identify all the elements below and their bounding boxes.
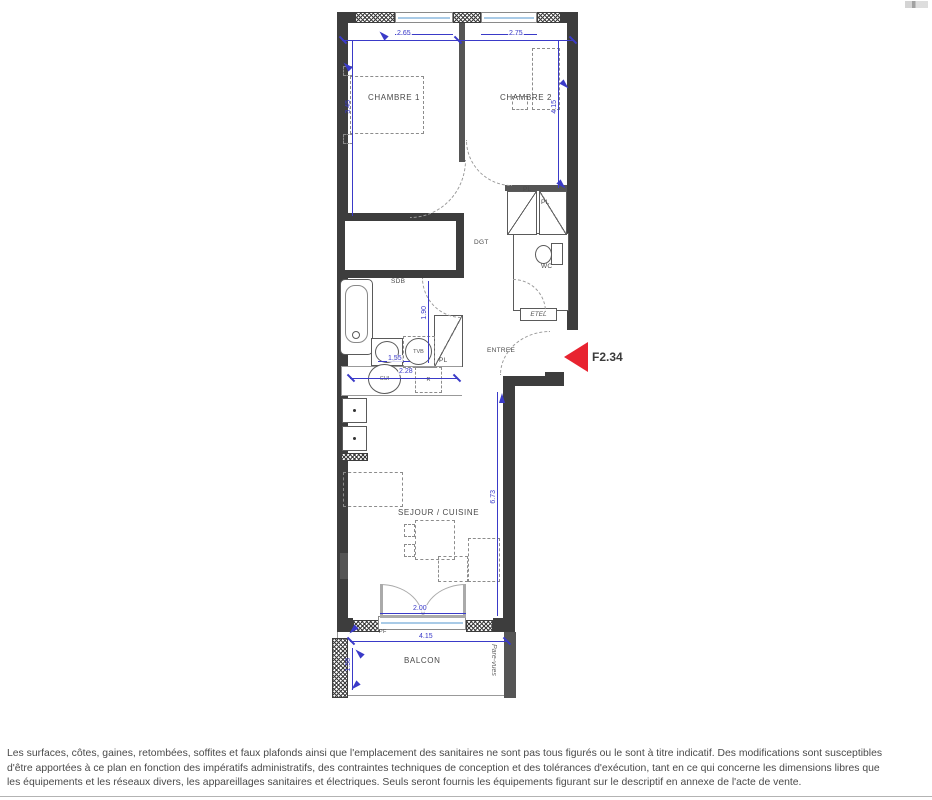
bottom-rule (0, 796, 932, 797)
window (481, 12, 537, 23)
chair (404, 524, 415, 537)
disclaimer-line: d'être apportées à ce plan en fonction d… (7, 762, 929, 777)
dim-pf-width: 2.00 (412, 605, 428, 612)
pare-vues-label: Pare-vues (490, 644, 497, 676)
wc-bowl (535, 245, 552, 264)
dim-sejour-depth: 6.73 (489, 490, 498, 504)
door-arc (410, 160, 466, 218)
closet-label-pl: PL (541, 199, 550, 206)
bathtub-drain (352, 331, 360, 339)
closet-pl-1 (507, 191, 537, 235)
entrance-arrow-icon (564, 342, 588, 372)
closet-pl-2 (539, 191, 567, 235)
porte-fenetre-frame (378, 616, 466, 630)
floor-plan-page: Pare-vues ETEL TVB CUI R (0, 0, 932, 800)
unit-reference: F2.34 (592, 350, 623, 364)
room-label-entree: ENTREE (487, 347, 515, 354)
dimension-line (350, 378, 458, 379)
dim-lavabo: 1.55 (387, 355, 403, 362)
wc-cistern (551, 243, 563, 265)
window (395, 12, 453, 23)
room-label-chambre2: CHAMBRE 2 (500, 93, 552, 102)
room-label-balcon: BALCON (404, 656, 441, 665)
dim-chambre2-depth: 4.15 (550, 100, 559, 114)
dim-balcon-width: 4.15 (418, 633, 434, 640)
room-label-chambre1: CHAMBRE 1 (368, 93, 420, 102)
hatched-wall (341, 453, 368, 461)
chair (404, 544, 415, 557)
oven-unit (342, 426, 367, 451)
wall-segment (493, 618, 515, 632)
oven-unit (342, 398, 367, 423)
hatched-wall (453, 12, 481, 23)
door-arc (466, 140, 512, 186)
dimension-line (428, 281, 429, 363)
dim-kitchen: 2.28 (398, 368, 414, 375)
knob-dot (353, 409, 356, 412)
sofa-return (438, 556, 468, 582)
dimension-line (558, 40, 559, 188)
room-label-sdb: SDB (391, 278, 405, 285)
window-sill (381, 622, 463, 624)
window-sill (398, 17, 450, 19)
dim-sdb-depth: 1.90 (420, 306, 429, 320)
label-pf: PF (379, 629, 387, 635)
knob-dot (353, 437, 356, 440)
disclaimer-line: Les surfaces, côtes, gaines, retombées, … (7, 747, 929, 762)
dim-window2: 2.75 (508, 30, 524, 37)
radiator (340, 553, 348, 579)
kitchen-sink: CUI (368, 364, 401, 394)
hatched-wall (466, 620, 493, 632)
window-sill (484, 17, 534, 19)
kitchen-island (343, 472, 403, 507)
closet-label-pl: PL (523, 186, 532, 193)
dim-balcon-depth: 1.58 (344, 658, 353, 672)
hatched-wall (537, 12, 561, 23)
dimension-line (350, 641, 508, 642)
sofa (468, 538, 500, 582)
page-corner-mark (905, 1, 928, 8)
wall-right-sejour (503, 383, 515, 629)
hatched-wall (355, 12, 395, 23)
fridge: R (415, 367, 442, 393)
shaft-void (345, 221, 456, 270)
room-label-dgt: DGT (474, 239, 489, 246)
dim-chambre1-depth: 3.45 (344, 100, 353, 114)
room-label-wc: WC (541, 263, 552, 270)
dimension-arrow (377, 29, 388, 40)
closet-label-pl: PL (439, 357, 448, 364)
dining-table (415, 520, 455, 560)
disclaimer-line: les équipements et les réseaux divers, l… (7, 776, 929, 791)
bed-chambre1 (350, 76, 424, 134)
room-label-sejour: SEJOUR / CUISINE (398, 508, 479, 517)
disclaimer-text: Les surfaces, côtes, gaines, retombées, … (7, 747, 929, 791)
dimension-line (497, 392, 498, 616)
dimension-line (380, 613, 466, 614)
dimension-arrow (499, 393, 505, 403)
dim-window1: 2.65 (396, 30, 412, 37)
